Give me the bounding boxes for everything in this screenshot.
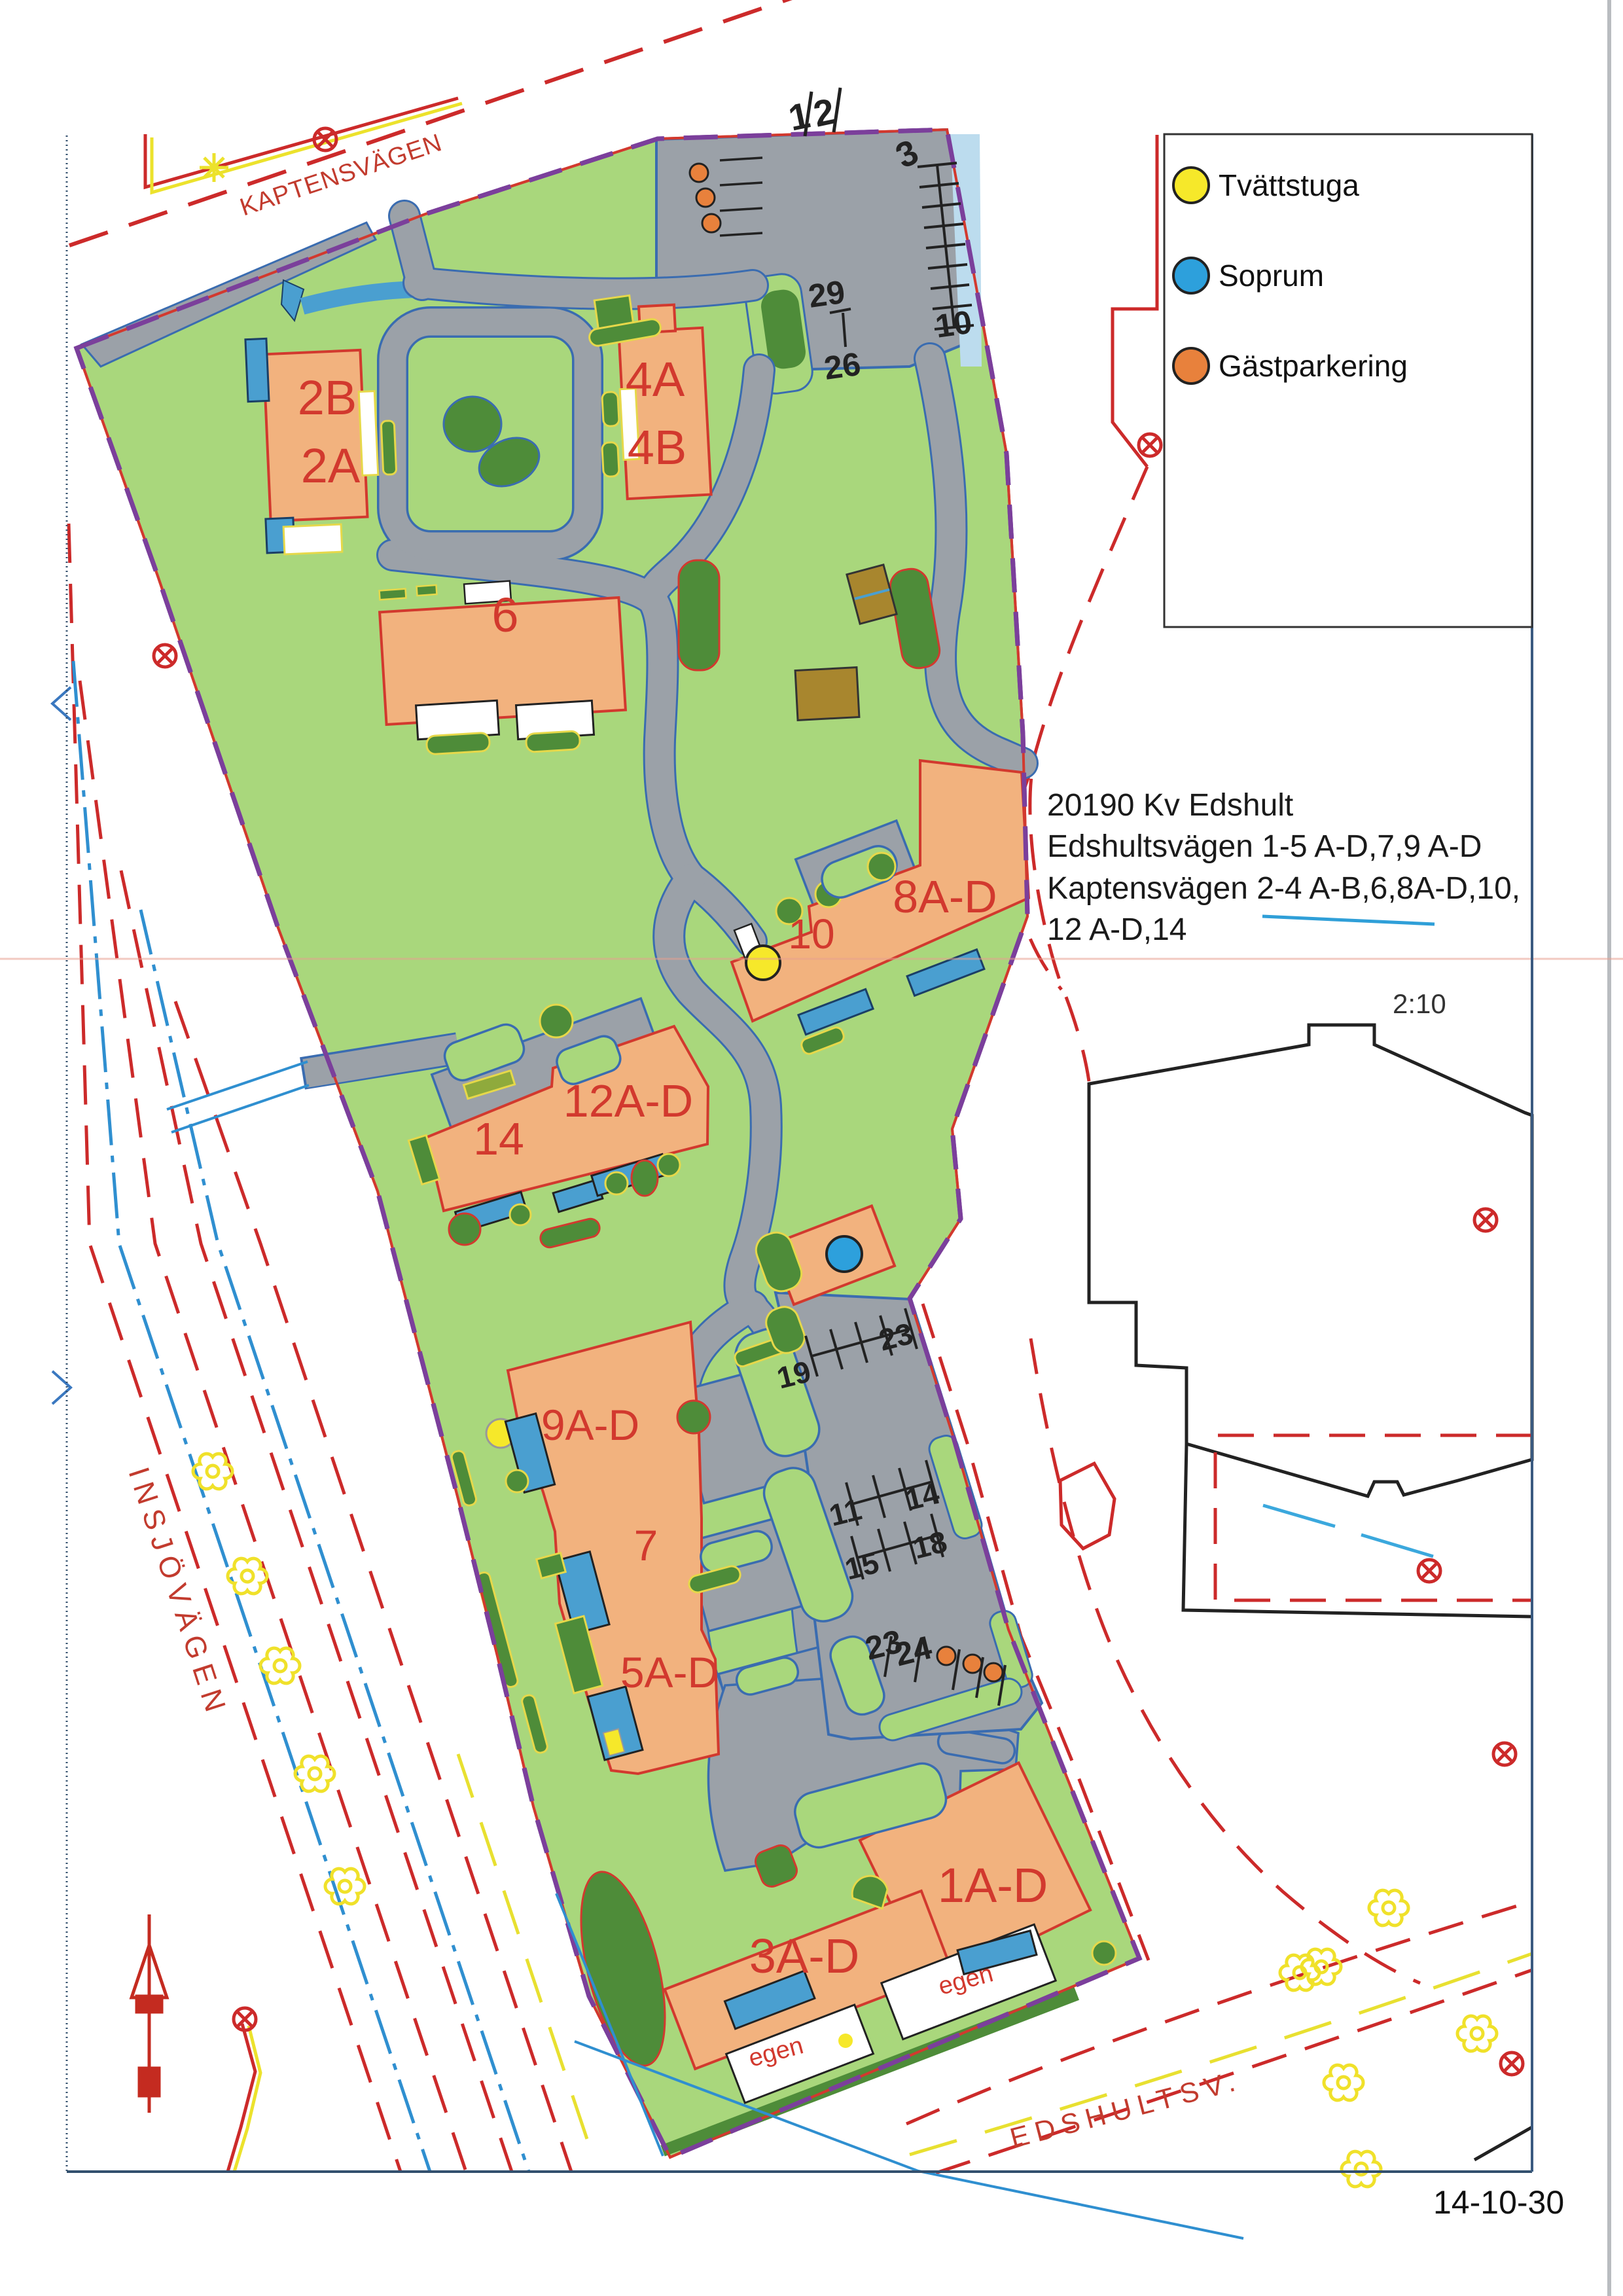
svg-text:14-10-30: 14-10-30 — [1433, 2184, 1564, 2221]
svg-text:Kaptensvägen 2-4 A-B,6,8A-D,10: Kaptensvägen 2-4 A-B,6,8A-D,10, — [1047, 871, 1520, 906]
svg-text:12A-D: 12A-D — [563, 1075, 693, 1126]
svg-text:2A: 2A — [301, 439, 361, 493]
svg-text:5A-D: 5A-D — [620, 1648, 719, 1696]
svg-text:Gästparkering: Gästparkering — [1219, 349, 1408, 383]
svg-text:10: 10 — [788, 910, 834, 958]
svg-text:Soprum: Soprum — [1219, 259, 1324, 293]
svg-text:4A: 4A — [626, 352, 685, 406]
svg-text:Edshultsvägen 1-5 A-D,7,9 A-D: Edshultsvägen 1-5 A-D,7,9 A-D — [1047, 829, 1482, 864]
svg-text:3A-D: 3A-D — [749, 1929, 860, 1983]
svg-text:2:10: 2:10 — [1393, 988, 1446, 1019]
svg-text:26: 26 — [822, 346, 863, 387]
svg-text:4B: 4B — [628, 420, 687, 475]
svg-text:Tvättstuga: Tvättstuga — [1219, 168, 1359, 202]
svg-text:14: 14 — [473, 1113, 524, 1164]
svg-text:6: 6 — [491, 588, 518, 642]
svg-text:2B: 2B — [298, 370, 357, 425]
svg-text:12 A-D,14: 12 A-D,14 — [1047, 912, 1186, 947]
svg-text:1A-D: 1A-D — [938, 1858, 1048, 1912]
svg-text:10: 10 — [933, 304, 974, 345]
svg-text:7: 7 — [634, 1521, 658, 1570]
svg-text:20190 Kv Edshult: 20190 Kv Edshult — [1047, 788, 1293, 823]
svg-text:8A-D: 8A-D — [893, 871, 997, 922]
svg-text:29: 29 — [806, 274, 847, 315]
svg-text:9A-D: 9A-D — [541, 1401, 639, 1449]
